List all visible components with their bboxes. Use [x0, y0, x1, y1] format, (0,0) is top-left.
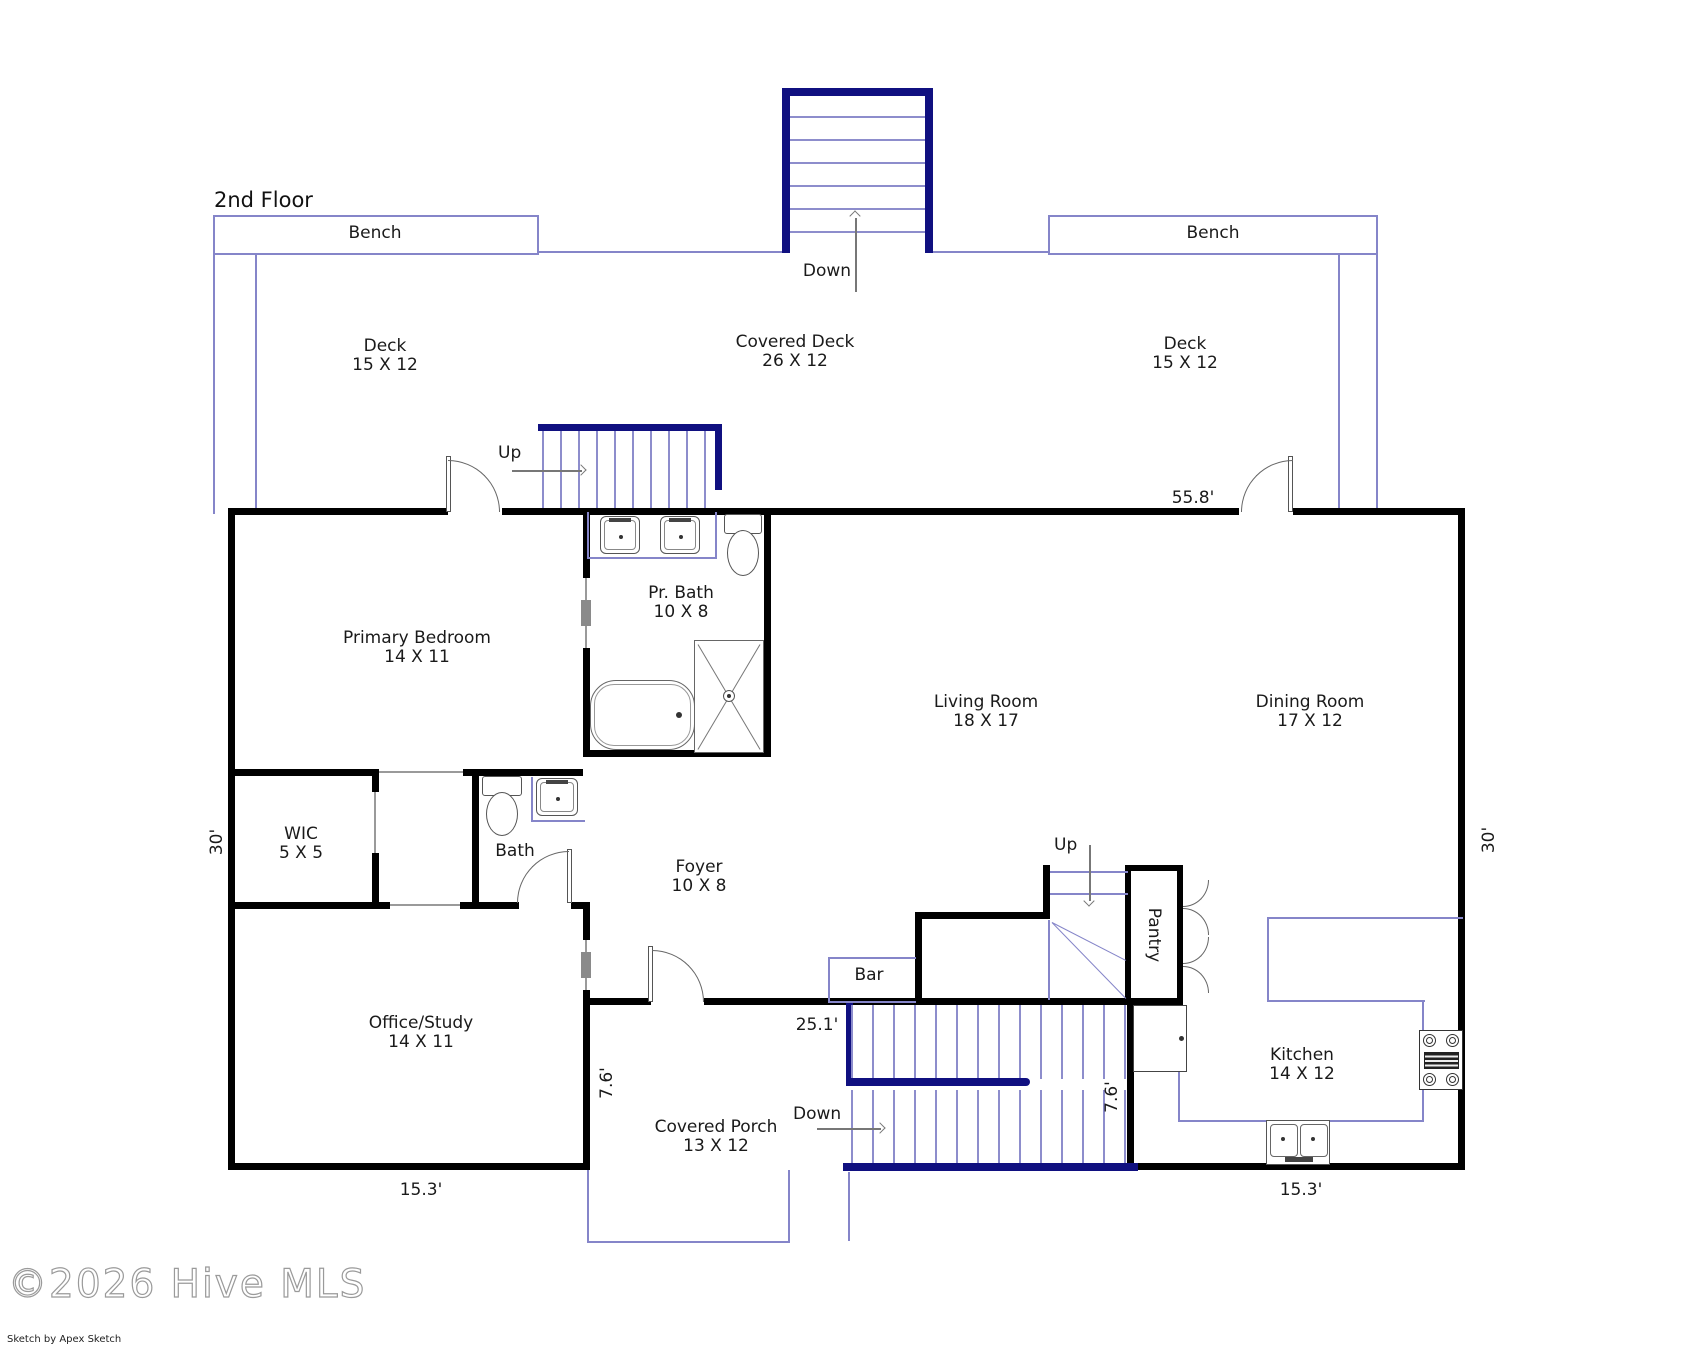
deck-inner-left-line: [255, 253, 257, 514]
porch-stairs-down-label: Down: [793, 1105, 841, 1124]
wall-left: [228, 508, 235, 1170]
shower-drain-icon: [723, 690, 735, 702]
bath-counter-line-h: [531, 820, 585, 822]
porch-outline-left: [587, 1170, 589, 1243]
wall-stair-stub: [1043, 865, 1050, 919]
bath-counter-line-v: [531, 777, 533, 822]
deck-door-right-swing: [1241, 460, 1293, 512]
dim-porch-width: 25.1': [796, 1016, 839, 1035]
wall-bath-left: [472, 769, 479, 909]
kitchen-sink-icon: [1266, 1120, 1330, 1165]
dim-right-height: 30': [1479, 827, 1499, 853]
bath-sink-icon: [536, 778, 578, 816]
wall-top-c: [1293, 508, 1465, 515]
front-door-swing: [652, 950, 704, 1002]
dim-left-height: 30': [207, 829, 227, 855]
porch-stairs-mid-rail: [846, 1078, 1030, 1086]
wall-pantry-left: [1125, 865, 1131, 1005]
vanity-sink-left-icon: [600, 516, 640, 554]
kitchen-counter-bottom-line: [1267, 1000, 1425, 1002]
dining-room-label: Dining Room17 X 12: [1256, 693, 1365, 731]
pr-bath-label: Pr. Bath10 X 8: [648, 584, 714, 622]
bench-right-label: Bench: [1186, 224, 1239, 243]
wall-office-right-a: [583, 905, 590, 940]
pantry-label: Pantry: [1144, 908, 1164, 962]
bench-left-label: Bench: [348, 224, 401, 243]
prbath-toilet-bowl-icon: [727, 530, 759, 576]
interior-up-arrow-line: [1089, 845, 1091, 901]
prbath-window-icon: [581, 600, 591, 626]
deck-stairs-up-treads: [542, 431, 714, 512]
porch-stairs-bottom-rail: [843, 1163, 1138, 1171]
pantry-bifold-arc-3: [1183, 937, 1209, 964]
deck-edge-line-left: [537, 251, 784, 253]
vanity-sink-right-icon: [660, 516, 700, 554]
bath-label: Bath: [495, 842, 535, 861]
wall-porch-top-a: [583, 998, 651, 1005]
deck-left-label: Deck15 X 12: [352, 337, 418, 375]
up-arrow-line: [512, 470, 582, 472]
wall-bedroom-bottom-a: [228, 769, 378, 776]
wall-top-a: [228, 508, 448, 515]
bath-toilet-bowl-icon: [486, 792, 518, 836]
interior-stairs-winder-edge: [1048, 920, 1050, 1000]
foyer-label: Foyer10 X 8: [672, 858, 727, 896]
bar-label: Bar: [854, 966, 883, 985]
winder-diagonal-2: [1052, 922, 1126, 961]
primary-bedroom-label: Primary Bedroom14 X 11: [343, 629, 491, 667]
porch-stairs-treads-upper: [851, 1005, 1128, 1079]
wall-office-top-b: [460, 902, 519, 909]
dim-bottom-right-width: 15.3': [1280, 1181, 1323, 1200]
covered-porch-label: Covered Porch13 X 12: [655, 1118, 778, 1156]
interior-up-arrow-head-icon: [1083, 895, 1094, 906]
winder-diagonal-1: [1052, 922, 1127, 999]
deck-inner-right-line: [1338, 253, 1340, 514]
pantry-bifold-arc-4: [1183, 966, 1209, 993]
interior-stairs-up-label: Up: [1054, 836, 1077, 855]
wall-bedroom-bottom-b: [463, 769, 583, 776]
porch-stair-edge-line: [848, 1172, 850, 1241]
office-window-icon: [581, 952, 591, 978]
wall-wic-right-b: [372, 853, 379, 909]
wic-label: WIC5 X 5: [279, 825, 323, 863]
deck-outer-right-line: [1376, 215, 1378, 514]
deck-stairs-up-top-rail: [538, 424, 722, 431]
deck-edge-line-right: [931, 251, 1050, 253]
wall-office-right-b: [583, 990, 590, 1163]
deck-outer-left-line: [213, 215, 215, 514]
porch-outline-right: [788, 1170, 790, 1243]
deck-stairs-up-label: Up: [498, 444, 521, 463]
down-arrow-line: [855, 218, 857, 292]
kitchen-counter-right-line-b: [1422, 1088, 1424, 1122]
floor-title: 2nd Floor: [214, 188, 313, 212]
dim-bottom-left-width: 15.3': [400, 1181, 443, 1200]
wall-bottom-left: [228, 1163, 590, 1170]
stove-icon: [1419, 1030, 1463, 1090]
wall-stair-top: [915, 912, 1050, 919]
deck-stairs-up-right-rail: [715, 424, 722, 490]
wall-porch-top-b: [704, 998, 1183, 1005]
living-room-label: Living Room18 X 17: [934, 693, 1038, 731]
deck-right-label: Deck15 X 12: [1152, 335, 1218, 373]
floor-plan: ©2026 Hive MLS Sketch by Apex Sketch Dow…: [0, 0, 1694, 1352]
deck-door-left-swing: [448, 460, 500, 512]
kitchen-label: Kitchen14 X 12: [1269, 1046, 1335, 1084]
porch-outline-bottom: [587, 1241, 790, 1243]
dim-top-width: 55.8': [1172, 489, 1215, 508]
wall-office-top-c: [571, 902, 590, 909]
dim-kitchen-height: 7.6': [1102, 1081, 1122, 1113]
wall-pantry-top: [1125, 865, 1183, 871]
kitchen-lower-counter-left-line: [1178, 1072, 1180, 1122]
kitchen-counter-right-line-a: [1422, 1000, 1424, 1034]
wall-wic-right-a: [372, 769, 379, 792]
wall-prbath-left-b: [583, 648, 590, 757]
covered-deck-label: Covered Deck26 X 12: [736, 333, 855, 371]
porch-down-arrow-line: [817, 1128, 881, 1130]
wall-stair-left: [915, 912, 922, 1005]
wall-office-top-a: [228, 902, 390, 909]
kitchen-counter-left-line: [1267, 917, 1269, 1002]
office-study-label: Office/Study14 X 11: [369, 1014, 473, 1052]
pantry-bifold-arc-1: [1183, 880, 1209, 907]
bathtub-icon: [590, 680, 695, 750]
wall-prbath-right: [764, 508, 771, 757]
kitchen-counter-top-line: [1267, 917, 1463, 919]
sketch-credit: Sketch by Apex Sketch: [7, 1334, 121, 1345]
dim-porch-height: 7.6': [597, 1067, 617, 1099]
wic-door-opening-line: [374, 792, 376, 853]
deck-stairs-down-label: Down: [803, 262, 851, 281]
bedroom-opening-line: [378, 771, 463, 773]
deck-stairs-down-treads: [790, 116, 925, 253]
porch-stairs-treads-lower: [851, 1090, 1128, 1163]
watermark-text: ©2026 Hive MLS: [8, 1262, 366, 1307]
refrigerator-icon: [1133, 1005, 1187, 1072]
hall-opening-line: [390, 904, 460, 906]
pantry-bifold-arc-2: [1183, 908, 1209, 935]
